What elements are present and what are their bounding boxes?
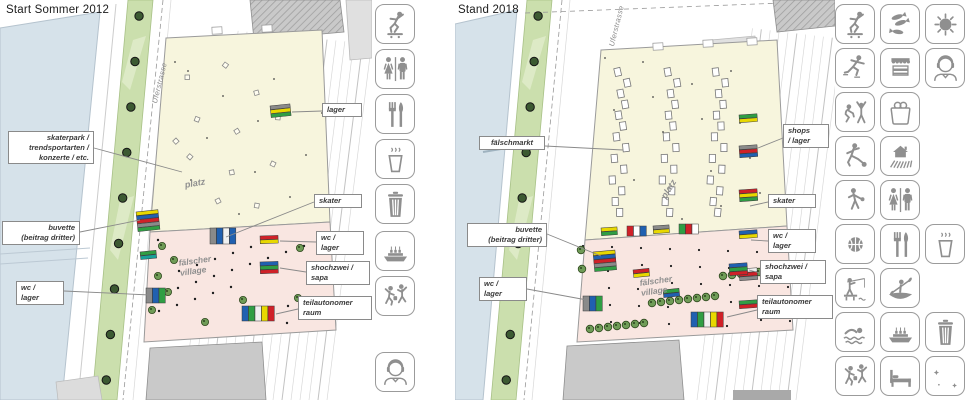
panel-plan-2018: Stand 2018 Uferstrasse platz fälscher vi… (455, 0, 835, 400)
kayaker-icon (884, 272, 917, 305)
legend-boule (835, 180, 875, 220)
legend-skateboarding (375, 4, 415, 44)
legend-fishing (835, 268, 875, 308)
callout-wc-lager-east: wc / lager (316, 231, 364, 255)
legend-football (835, 136, 875, 176)
callout-wc-lager-east: wc / lager (768, 229, 816, 253)
callout-buvette: buvette (beitrag dritter) (2, 221, 80, 245)
legend-food (375, 94, 415, 134)
platz-area (150, 30, 330, 232)
legend-basketball (835, 224, 875, 264)
trash-bin-icon (929, 316, 962, 349)
legend-ship-landing (880, 312, 920, 352)
callout-wc-lager-west: wc / lager (16, 281, 64, 305)
fisherman-icon (839, 272, 872, 305)
wc-icon (884, 184, 917, 217)
legend-shopping (880, 92, 920, 132)
ship-icon (379, 235, 412, 268)
skateboarding-icon (379, 8, 412, 41)
legend-dancing (375, 276, 415, 316)
building-south (146, 342, 266, 400)
football-player-icon (839, 140, 872, 173)
legend-market-stall (880, 48, 920, 88)
callout-faelschmarkt: fälschmarkt (479, 136, 545, 150)
fork-knife-icon (379, 98, 412, 131)
basketball-icon (839, 228, 872, 261)
legend-dj-music (925, 48, 965, 88)
legend-ice-skating (835, 48, 875, 88)
legend-dj-music (375, 352, 415, 392)
legend-wc (880, 180, 920, 220)
legend-canoeing (880, 268, 920, 308)
ice-skater-icon (839, 52, 872, 85)
callout-buvette: buvette (beitrag dritter) (467, 223, 547, 247)
fish-icon (884, 8, 917, 41)
wc-icon (379, 53, 412, 86)
headphones-person-icon (379, 356, 412, 389)
legend-night (925, 356, 965, 396)
page-title-2018: Stand 2018 (458, 4, 519, 16)
callout-hochzwei-sapa: shochzwei / sapa (306, 261, 370, 285)
panel-plan-2012: Start Sommer 2012 Uferstrasse platz fäls… (0, 0, 435, 400)
callout-wc-lager-west: wc / lager (479, 277, 527, 301)
legend-skateboarding (835, 4, 875, 44)
legend-swimming (835, 312, 875, 352)
legend-waste-bin (375, 184, 415, 224)
callout-teilautonomer-raum: teilautonomer raum (757, 295, 833, 319)
building-north (773, 0, 835, 32)
legend-farm (880, 136, 920, 176)
legend-fish-market (880, 4, 920, 44)
legend-hot-drinks (375, 139, 415, 179)
callout-lager: lager (322, 103, 362, 117)
moon-stars-icon (929, 360, 962, 393)
callout-skater: skater (314, 194, 362, 208)
farmhouse-field-icon (884, 140, 917, 173)
legend-food (880, 224, 920, 264)
water-area (0, 12, 100, 400)
legend-hot-drinks (925, 224, 965, 264)
dancing-icon (379, 280, 412, 313)
boule-player-icon (839, 184, 872, 217)
ship-icon (884, 316, 917, 349)
bed-icon (884, 360, 917, 393)
sun-icon (929, 8, 962, 41)
skateboarding-icon (839, 8, 872, 41)
callout-hochzwei-sapa: shochzwei / sapa (760, 260, 826, 284)
legend-sleeping (880, 356, 920, 396)
legend-wc (375, 49, 415, 89)
headphones-person-icon (929, 52, 962, 85)
legend-dancing (835, 356, 875, 396)
dancing-icon (839, 360, 872, 393)
legend-sun (925, 4, 965, 44)
building-south (563, 340, 684, 400)
callout-shops-lager: shops / lager (783, 124, 829, 148)
shopping-bag-icon (884, 96, 917, 129)
trash-bin-icon (379, 188, 412, 221)
fork-knife-icon (884, 228, 917, 261)
callout-skaterpark: skaterpark / trendsportarten / konzerte … (8, 131, 94, 164)
hot-drink-icon (929, 228, 962, 261)
legend-ship-landing (375, 231, 415, 271)
page-title-2012: Start Sommer 2012 (6, 4, 109, 16)
cheering-people-icon (839, 96, 872, 129)
callout-teilautonomer-raum: teilautonomer raum (298, 296, 372, 320)
callout-skater: skater (768, 194, 816, 208)
market-stall-icon (884, 52, 917, 85)
hot-drink-icon (379, 143, 412, 176)
swimmer-icon (839, 316, 872, 349)
legend-waste-bin (925, 312, 965, 352)
legend-concert (835, 92, 875, 132)
